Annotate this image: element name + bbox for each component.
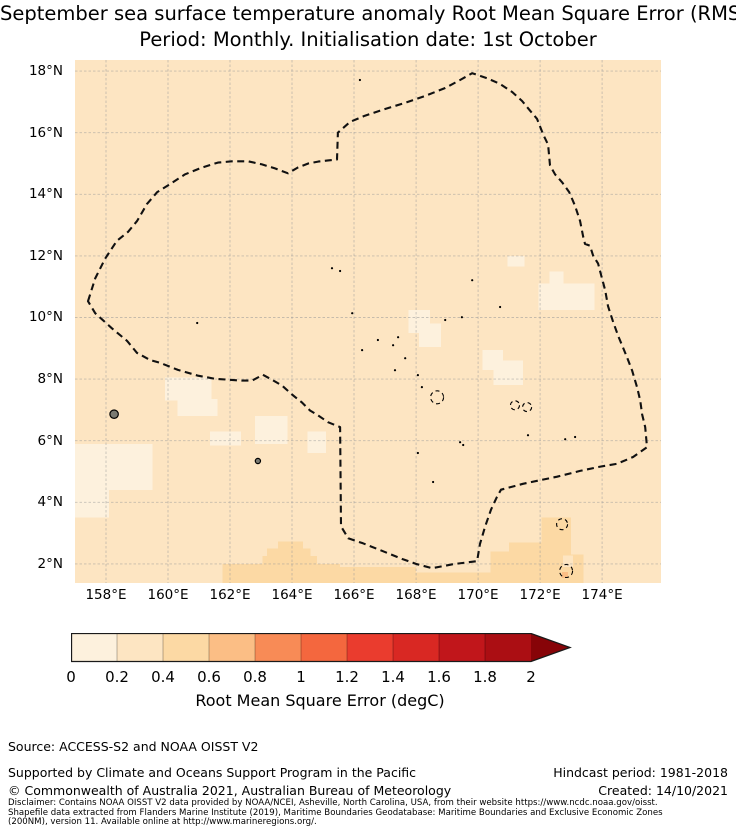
- colorbar-tick-labels: 00.20.40.60.811.21.41.61.82: [71, 668, 573, 686]
- title-line-2: Period: Monthly. Initialisation date: 1s…: [0, 28, 736, 51]
- figure-title: September sea surface temperature anomal…: [0, 2, 736, 51]
- x-tick-label: 162°E: [209, 587, 250, 603]
- colorbar-tick-label: 0.8: [243, 668, 267, 686]
- x-tick-label: 158°E: [85, 587, 126, 603]
- x-tick-label: 172°E: [520, 587, 561, 603]
- y-tick-label: 2°N: [38, 556, 63, 572]
- x-axis-tick-labels: 158°E160°E162°E164°E166°E168°E170°E172°E…: [75, 587, 661, 607]
- copyright-note: © Commonwealth of Australia 2021, Austra…: [8, 783, 451, 798]
- y-tick-label: 12°N: [29, 248, 63, 264]
- y-axis-tick-labels: 18°N16°N14°N12°N10°N8°N6°N4°N2°N: [0, 60, 70, 583]
- title-line-1: September sea surface temperature anomal…: [0, 2, 736, 25]
- data-source-note: Source: ACCESS-S2 and NOAA OISST V2: [8, 739, 258, 754]
- x-tick-label: 164°E: [272, 587, 313, 603]
- colorbar-tick-label: 0.6: [197, 668, 221, 686]
- hindcast-period-note: Hindcast period: 1981-2018: [553, 765, 728, 780]
- x-tick-label: 174°E: [582, 587, 623, 603]
- disclaimer-line-3: (200NM), version 11. Available online at…: [8, 818, 734, 828]
- colorbar-tick-label: 1.2: [335, 668, 359, 686]
- y-tick-label: 4°N: [38, 494, 63, 510]
- x-tick-label: 168°E: [396, 587, 437, 603]
- colorbar-axis-label: Root Mean Square Error (degC): [195, 691, 444, 710]
- colorbar-tick-label: 1.4: [381, 668, 405, 686]
- y-tick-label: 10°N: [29, 309, 63, 325]
- colorbar-tick-label: 0.2: [105, 668, 129, 686]
- x-tick-label: 160°E: [147, 587, 188, 603]
- y-tick-label: 8°N: [38, 371, 63, 387]
- colorbar-tick-label: 0.4: [151, 668, 175, 686]
- y-tick-label: 6°N: [38, 433, 63, 449]
- x-tick-label: 170°E: [458, 587, 499, 603]
- colorbar-tick-label: 1: [296, 668, 306, 686]
- y-tick-label: 16°N: [29, 125, 63, 141]
- colorbar-tick-label: 1.8: [473, 668, 497, 686]
- colorbar: [71, 633, 573, 663]
- sst-rmse-map: [75, 60, 661, 583]
- figure-canvas: { "title": { "line1": "September sea sur…: [0, 0, 736, 839]
- x-tick-label: 166°E: [334, 587, 375, 603]
- disclaimer-text: Disclaimer: Contains NOAA OISST V2 data …: [8, 799, 734, 828]
- map-plot-area: [75, 60, 661, 583]
- colorbar-tick-label: 2: [526, 668, 536, 686]
- y-tick-label: 14°N: [29, 186, 63, 202]
- colorbar-gradient: [71, 633, 573, 663]
- y-tick-label: 18°N: [29, 63, 63, 79]
- colorbar-tick-label: 0: [66, 668, 76, 686]
- supported-by-note: Supported by Climate and Oceans Support …: [8, 765, 416, 780]
- created-date-note: Created: 14/10/2021: [598, 783, 728, 798]
- colorbar-tick-label: 1.6: [427, 668, 451, 686]
